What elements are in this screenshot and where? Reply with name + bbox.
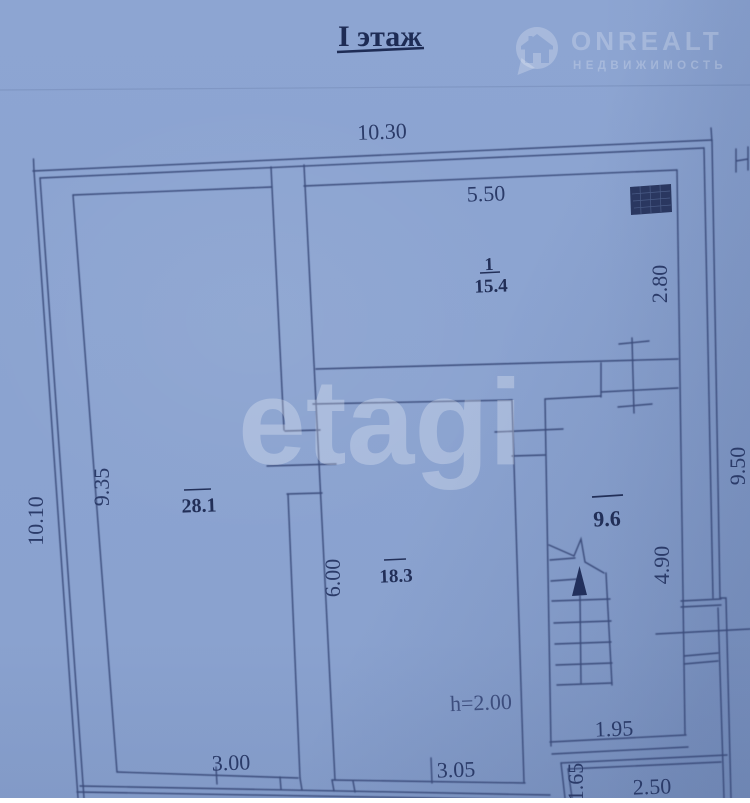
svg-text:9.35: 9.35 <box>89 468 114 507</box>
svg-text:1: 1 <box>484 254 494 274</box>
svg-text:3.00: 3.00 <box>211 749 250 775</box>
svg-text:2.50: 2.50 <box>632 773 671 798</box>
svg-text:h=2.00: h=2.00 <box>450 689 513 716</box>
svg-text:6.00: 6.00 <box>320 559 345 598</box>
svg-text:5.50: 5.50 <box>466 180 505 206</box>
svg-text:ONREALT: ONREALT <box>571 26 723 56</box>
svg-text:9.6: 9.6 <box>593 506 621 532</box>
svg-text:10.30: 10.30 <box>357 118 407 145</box>
svg-text:etagi: etagi <box>238 354 523 490</box>
svg-text:4.90: 4.90 <box>649 546 674 585</box>
svg-text:18.3: 18.3 <box>379 565 413 587</box>
svg-text:НЕДВИЖИМОСТЬ: НЕДВИЖИМОСТЬ <box>573 60 727 72</box>
svg-text:9.50: 9.50 <box>725 447 750 486</box>
svg-text:15.4: 15.4 <box>474 275 508 297</box>
svg-text:1.95: 1.95 <box>594 715 633 741</box>
svg-text:28.1: 28.1 <box>181 494 217 517</box>
svg-text:3.05: 3.05 <box>436 756 475 782</box>
svg-text:2.80: 2.80 <box>647 265 672 304</box>
svg-text:10.10: 10.10 <box>23 496 48 546</box>
svg-text:1.65: 1.65 <box>563 763 588 798</box>
